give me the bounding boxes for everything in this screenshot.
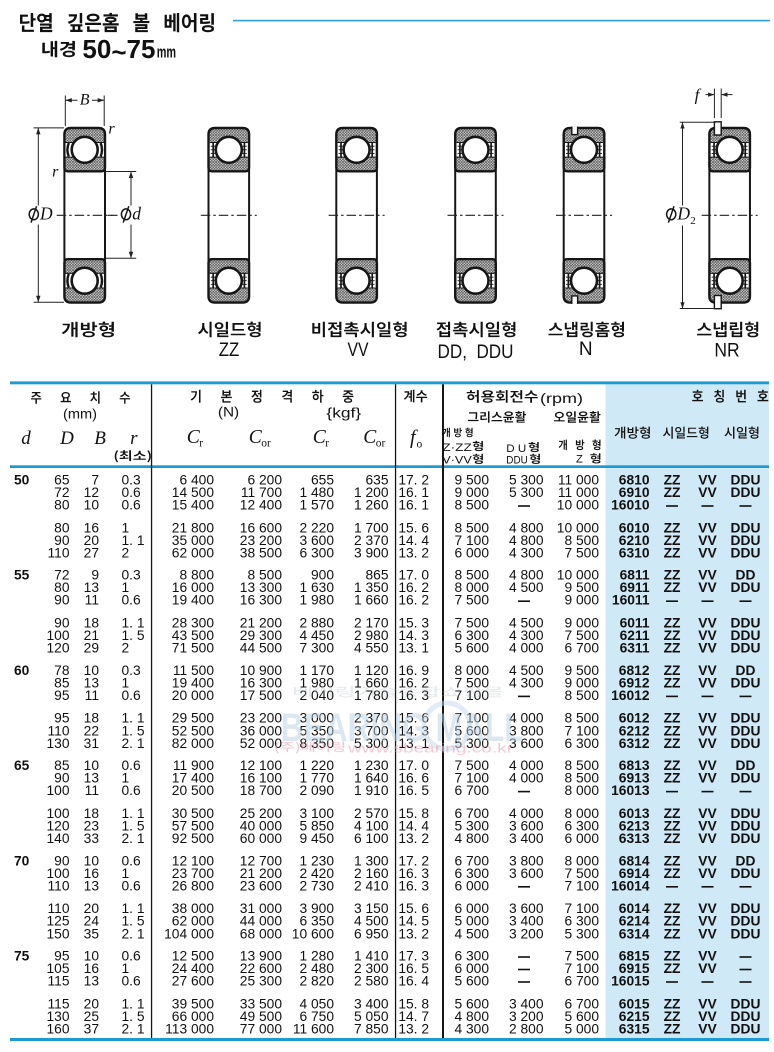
svg-text:4 300: 4 300 xyxy=(509,546,544,561)
svg-text:or: or xyxy=(376,438,386,450)
svg-text:D: D xyxy=(676,203,690,223)
svg-text:Z: Z xyxy=(576,453,583,465)
svg-text:6 700: 6 700 xyxy=(454,783,489,798)
svg-text:2: 2 xyxy=(690,215,696,227)
svg-text:8 500: 8 500 xyxy=(564,688,599,703)
svg-text:0.6: 0.6 xyxy=(122,688,142,703)
svg-text:2 730: 2 730 xyxy=(299,878,334,893)
svg-text:6 700: 6 700 xyxy=(564,974,599,989)
svg-text:82 000: 82 000 xyxy=(172,736,215,751)
svg-text:r: r xyxy=(325,438,329,450)
svg-text:23 600: 23 600 xyxy=(240,878,283,893)
svg-text:VV: VV xyxy=(698,1022,717,1037)
svg-text:6 000: 6 000 xyxy=(454,546,489,561)
svg-text:4 800: 4 800 xyxy=(454,831,489,846)
svg-text:11: 11 xyxy=(85,688,99,703)
svg-text:DDU: DDU xyxy=(731,736,761,751)
svg-text:r: r xyxy=(130,428,138,449)
svg-text:DDU: DDU xyxy=(731,866,761,881)
svg-text:6 100: 6 100 xyxy=(354,831,389,846)
svg-text:65: 65 xyxy=(14,758,30,773)
svg-text:DDU: DDU xyxy=(506,455,528,467)
svg-text:2: 2 xyxy=(122,546,130,561)
svg-text:DDU: DDU xyxy=(731,1022,761,1037)
svg-text:6 700: 6 700 xyxy=(564,641,599,656)
svg-text:DDU: DDU xyxy=(731,546,761,561)
svg-text:www.sbearing.co.kr: www.sbearing.co.kr xyxy=(347,741,514,756)
svg-text:2: 2 xyxy=(122,641,130,656)
svg-text:16015: 16015 xyxy=(611,974,650,989)
svg-text:15 400: 15 400 xyxy=(172,498,215,513)
svg-text:0.6: 0.6 xyxy=(122,498,142,513)
svg-text:5 000: 5 000 xyxy=(564,1022,599,1037)
svg-text:16. 3: 16. 3 xyxy=(398,878,429,893)
svg-text:DDU: DDU xyxy=(731,831,761,846)
svg-text:5 600: 5 600 xyxy=(454,641,489,656)
svg-text:90: 90 xyxy=(54,593,70,608)
svg-text:5 300: 5 300 xyxy=(509,485,544,500)
svg-text:ZZ: ZZ xyxy=(664,736,681,751)
svg-text:VV: VV xyxy=(698,641,717,656)
svg-text:130: 130 xyxy=(46,736,69,751)
svg-text:77 000: 77 000 xyxy=(240,1022,283,1037)
svg-text:104 000: 104 000 xyxy=(164,926,214,941)
svg-text:16. 4: 16. 4 xyxy=(398,974,429,989)
svg-text:4 000: 4 000 xyxy=(509,771,544,786)
svg-text:DDU: DDU xyxy=(731,485,761,500)
svg-text:27: 27 xyxy=(84,546,99,561)
svg-text:4 300: 4 300 xyxy=(509,675,544,690)
svg-text:8 000: 8 000 xyxy=(564,783,599,798)
svg-text:V·VV: V·VV xyxy=(442,455,472,467)
svg-text:DDU: DDU xyxy=(731,641,761,656)
svg-text:B: B xyxy=(80,91,90,108)
svg-text:NR: NR xyxy=(714,340,739,361)
svg-text:113 000: 113 000 xyxy=(165,1022,214,1037)
svg-text:(N): (N) xyxy=(218,404,239,419)
svg-text:16. 5: 16. 5 xyxy=(398,783,429,798)
svg-text:2 580: 2 580 xyxy=(354,974,389,989)
svg-text:2 410: 2 410 xyxy=(354,878,389,893)
svg-text:4 500: 4 500 xyxy=(454,926,489,941)
svg-text:50~75: 50~75 xyxy=(82,34,155,67)
svg-text:115: 115 xyxy=(48,974,70,989)
svg-text:11 600: 11 600 xyxy=(293,1022,335,1037)
svg-text:6314: 6314 xyxy=(619,926,650,941)
svg-text:29: 29 xyxy=(84,641,100,656)
svg-text:ZZ: ZZ xyxy=(664,675,681,690)
svg-text:13: 13 xyxy=(84,974,100,989)
svg-text:7 850: 7 850 xyxy=(354,1022,389,1037)
svg-text:7 300: 7 300 xyxy=(299,641,334,656)
svg-text:d: d xyxy=(132,203,141,223)
svg-text:11: 11 xyxy=(85,593,99,608)
svg-text:mm: mm xyxy=(157,43,176,62)
svg-text:3 600: 3 600 xyxy=(509,866,544,881)
svg-text:13. 2: 13. 2 xyxy=(398,926,429,941)
svg-text:D: D xyxy=(39,203,53,223)
svg-text:D U: D U xyxy=(506,443,526,455)
svg-text:20 500: 20 500 xyxy=(172,783,215,798)
svg-text:DDU: DDU xyxy=(731,771,761,786)
svg-text:13. 1: 13. 1 xyxy=(398,641,429,656)
svg-text:B: B xyxy=(94,428,106,449)
svg-text:VV: VV xyxy=(698,675,717,690)
svg-text:16013: 16013 xyxy=(611,783,650,798)
svg-text:13. 2: 13. 2 xyxy=(398,546,429,561)
svg-text:VV: VV xyxy=(698,771,717,786)
svg-text:6 300: 6 300 xyxy=(299,546,334,561)
svg-text:10: 10 xyxy=(84,498,100,513)
svg-text:60 000: 60 000 xyxy=(240,831,283,846)
svg-text:13. 2: 13. 2 xyxy=(398,1022,429,1037)
svg-text:13: 13 xyxy=(84,878,100,893)
svg-text:16. 2: 16. 2 xyxy=(398,593,429,608)
svg-text:10 000: 10 000 xyxy=(557,498,600,513)
svg-text:2. 1: 2. 1 xyxy=(122,736,145,751)
svg-text:ZZ: ZZ xyxy=(664,926,681,941)
svg-text:16011: 16011 xyxy=(612,593,650,608)
svg-text:6 300: 6 300 xyxy=(564,736,599,751)
svg-text:r: r xyxy=(108,120,115,137)
svg-text:80: 80 xyxy=(54,498,70,513)
svg-text:12 400: 12 400 xyxy=(240,498,283,513)
svg-text:ZZ: ZZ xyxy=(664,866,681,881)
svg-text:ZZ: ZZ xyxy=(664,771,681,786)
svg-text:VV: VV xyxy=(698,866,717,881)
svg-text:3 400: 3 400 xyxy=(509,831,544,846)
svg-text:110: 110 xyxy=(48,546,70,561)
svg-text:70: 70 xyxy=(14,853,30,868)
svg-text:ZZ: ZZ xyxy=(664,580,681,595)
svg-text:DDU: DDU xyxy=(731,580,761,595)
svg-text:26 800: 26 800 xyxy=(172,878,215,893)
svg-text:VV: VV xyxy=(698,961,717,976)
svg-text:d: d xyxy=(21,428,31,449)
svg-text:7 500: 7 500 xyxy=(564,546,599,561)
svg-text:140: 140 xyxy=(46,831,69,846)
svg-text:11: 11 xyxy=(85,783,99,798)
svg-text:N: N xyxy=(579,339,593,360)
svg-text:0.6: 0.6 xyxy=(122,878,142,893)
svg-text:1 570: 1 570 xyxy=(299,498,334,513)
svg-text:6313: 6313 xyxy=(619,831,650,846)
svg-text:6312: 6312 xyxy=(619,736,650,751)
svg-text:1 260: 1 260 xyxy=(354,498,389,513)
svg-text:6 000: 6 000 xyxy=(454,878,489,893)
svg-text:ZZ: ZZ xyxy=(219,340,240,361)
svg-text:VV: VV xyxy=(698,485,717,500)
svg-text:37: 37 xyxy=(84,1022,99,1037)
svg-text:VV: VV xyxy=(698,580,717,595)
svg-text:6310: 6310 xyxy=(619,546,650,561)
svg-text:2. 1: 2. 1 xyxy=(122,926,145,941)
svg-text:5 300: 5 300 xyxy=(564,926,599,941)
svg-text:10 600: 10 600 xyxy=(292,926,335,941)
svg-text:35: 35 xyxy=(84,926,100,941)
svg-text:16012: 16012 xyxy=(611,688,650,703)
svg-text:60: 60 xyxy=(14,663,30,678)
svg-text:VV: VV xyxy=(698,546,717,561)
svg-text:33: 33 xyxy=(84,831,100,846)
svg-text:VV: VV xyxy=(698,736,717,751)
svg-text:D: D xyxy=(59,428,74,449)
svg-text:16 300: 16 300 xyxy=(240,593,283,608)
svg-text:110: 110 xyxy=(48,878,70,893)
svg-text:2 820: 2 820 xyxy=(299,974,334,989)
svg-text:2. 1: 2. 1 xyxy=(122,1022,145,1037)
svg-text:4 300: 4 300 xyxy=(454,1022,489,1037)
svg-text:DDU: DDU xyxy=(731,926,761,941)
svg-text:VV: VV xyxy=(698,926,717,941)
svg-text:120: 120 xyxy=(46,641,69,656)
svg-text:ZZ: ZZ xyxy=(664,1022,681,1037)
svg-text:6 950: 6 950 xyxy=(354,926,389,941)
svg-text:4 000: 4 000 xyxy=(509,641,544,656)
svg-text:0.6: 0.6 xyxy=(122,783,142,798)
svg-text:16. 1: 16. 1 xyxy=(398,498,429,513)
svg-text:6 000: 6 000 xyxy=(564,831,599,846)
svg-text:ZZ: ZZ xyxy=(664,961,681,976)
svg-text:92 500: 92 500 xyxy=(172,831,215,846)
svg-text:ZZ: ZZ xyxy=(664,641,681,656)
svg-text:6311: 6311 xyxy=(620,641,650,656)
svg-text:2. 1: 2. 1 xyxy=(122,831,145,846)
svg-text:Z·ZZ: Z·ZZ xyxy=(442,442,472,454)
svg-text:6315: 6315 xyxy=(619,1022,650,1037)
svg-text:17 500: 17 500 xyxy=(240,688,283,703)
svg-text:2 800: 2 800 xyxy=(509,1022,544,1037)
svg-text:68 000: 68 000 xyxy=(240,926,283,941)
svg-text:9 000: 9 000 xyxy=(564,593,599,608)
svg-text:31: 31 xyxy=(84,736,99,751)
svg-text:(rpm): (rpm) xyxy=(540,390,583,406)
svg-text:DDU: DDU xyxy=(731,675,761,690)
svg-text:25 300: 25 300 xyxy=(240,974,283,989)
svg-text:{kgf}: {kgf} xyxy=(326,405,361,420)
svg-text:1 660: 1 660 xyxy=(354,593,389,608)
svg-text:150: 150 xyxy=(46,926,69,941)
svg-text:44 500: 44 500 xyxy=(240,641,283,656)
svg-text:3 900: 3 900 xyxy=(354,546,389,561)
svg-text:50: 50 xyxy=(14,473,30,488)
svg-text:20 000: 20 000 xyxy=(172,688,215,703)
svg-text:7 100: 7 100 xyxy=(564,878,599,893)
svg-text:2 090: 2 090 xyxy=(299,783,334,798)
svg-text:3 200: 3 200 xyxy=(509,926,544,941)
svg-text:ZZ: ZZ xyxy=(664,485,681,500)
svg-text:r: r xyxy=(199,438,203,450)
svg-text:DD, DDU: DD, DDU xyxy=(438,342,514,363)
svg-text:75: 75 xyxy=(14,949,30,964)
svg-text:7 500: 7 500 xyxy=(454,593,489,608)
svg-text:38 500: 38 500 xyxy=(240,546,283,561)
svg-text:o: o xyxy=(417,439,423,451)
svg-text:9 450: 9 450 xyxy=(299,831,334,846)
svg-text:100: 100 xyxy=(46,783,69,798)
svg-text:1 910: 1 910 xyxy=(354,783,389,798)
svg-text:8 500: 8 500 xyxy=(454,498,489,513)
svg-text:5 600: 5 600 xyxy=(454,974,489,989)
svg-text:0.6: 0.6 xyxy=(122,593,142,608)
svg-text:0.6: 0.6 xyxy=(122,974,142,989)
svg-text:4 550: 4 550 xyxy=(354,641,389,656)
svg-text:27 600: 27 600 xyxy=(172,974,215,989)
svg-text:71 500: 71 500 xyxy=(172,641,215,656)
svg-text:VV: VV xyxy=(698,831,717,846)
svg-text:1 980: 1 980 xyxy=(299,593,334,608)
svg-text:or: or xyxy=(261,438,271,450)
svg-text:ZZ: ZZ xyxy=(664,546,681,561)
svg-text:16010: 16010 xyxy=(611,498,650,513)
svg-text:13. 2: 13. 2 xyxy=(398,831,429,846)
svg-text:r: r xyxy=(52,164,59,181)
svg-text:95: 95 xyxy=(54,688,70,703)
svg-text:4 500: 4 500 xyxy=(509,580,544,595)
svg-text:55: 55 xyxy=(14,568,30,583)
svg-text:18 700: 18 700 xyxy=(240,783,283,798)
svg-text:ZZ: ZZ xyxy=(664,831,681,846)
svg-text:16014: 16014 xyxy=(611,878,650,893)
svg-text:(mm): (mm) xyxy=(63,406,97,421)
svg-text:62 000: 62 000 xyxy=(172,546,215,561)
svg-text:160: 160 xyxy=(46,1022,69,1037)
svg-text:19 400: 19 400 xyxy=(172,593,215,608)
svg-text:VV: VV xyxy=(348,340,369,361)
